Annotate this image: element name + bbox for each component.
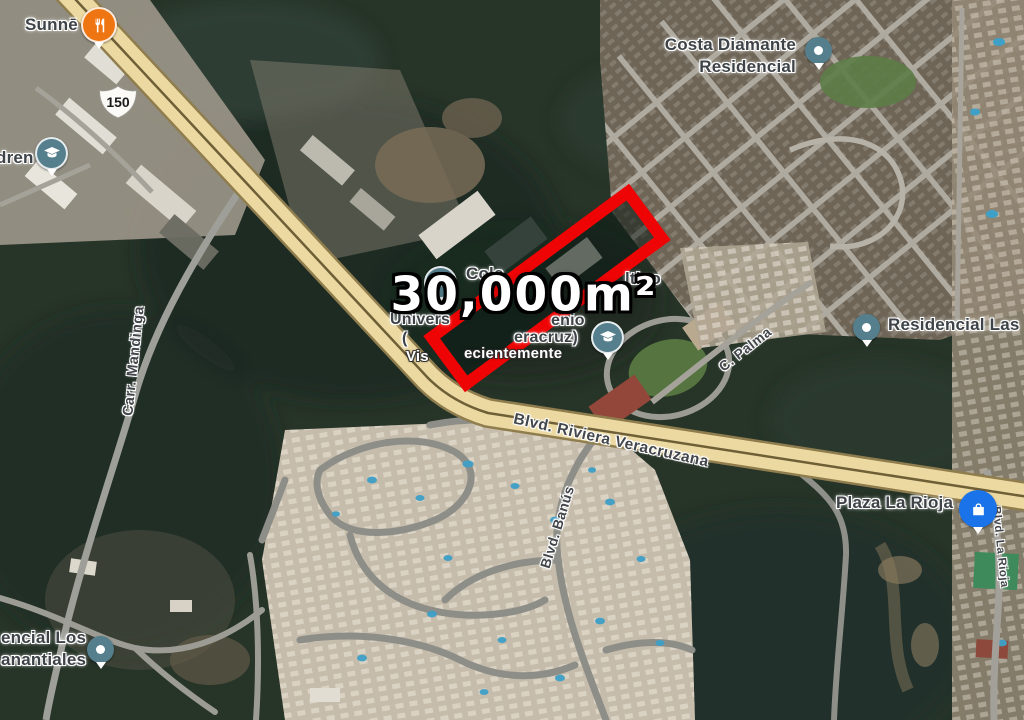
route-150-shield: 150 — [98, 85, 138, 119]
pin-tail — [94, 42, 104, 49]
restaurant-pin-sunne[interactable] — [81, 7, 117, 49]
shopping-pin-plaza[interactable] — [959, 490, 997, 534]
school-icon — [43, 147, 61, 161]
poi-label-plaza-la-rioja[interactable]: Plaza La Rioja — [836, 493, 953, 513]
poi-label-costa-diamante[interactable]: Costa Diamante Residencial — [658, 34, 796, 78]
satellite-map-view[interactable]: 150 — [0, 0, 1024, 720]
school-icon — [599, 331, 617, 345]
shopping-icon — [970, 501, 987, 518]
poi-label-universidad-paren-left[interactable]: ( — [402, 330, 408, 348]
pin-tail — [603, 353, 613, 360]
poi-label-sunne[interactable]: Sunnē — [25, 15, 78, 35]
school-pin-partial[interactable] — [35, 137, 68, 176]
place-icon — [862, 323, 871, 332]
place-icon — [96, 645, 105, 654]
poi-label-children-partial[interactable]: dren — [0, 148, 34, 168]
pin-tail — [814, 63, 824, 70]
pin-tail — [47, 169, 57, 176]
place-pin-residencial-las[interactable] — [853, 314, 880, 347]
status-visited-right: ecientemente — [464, 345, 562, 362]
pin-tail — [96, 662, 106, 669]
restaurant-icon — [91, 17, 108, 34]
poi-label-line2: Residencial — [658, 56, 796, 78]
pin-tail — [862, 340, 872, 347]
poi-label-line1: Costa Diamante — [658, 34, 796, 56]
route-number: 150 — [98, 94, 138, 110]
school-pin-universidad[interactable] — [591, 321, 624, 360]
place-pin-costa-diamante[interactable] — [805, 37, 832, 70]
status-visited-left: Vis — [406, 348, 429, 365]
poi-label-line1: encial Los — [1, 627, 86, 649]
place-icon — [814, 46, 823, 55]
place-pin-manantiales[interactable] — [87, 636, 114, 669]
pin-tail — [973, 527, 983, 534]
poi-label-residencial-las[interactable]: Residencial Las — [888, 315, 1020, 335]
parcel-area-label: 30,000m² — [391, 268, 658, 323]
poi-label-line2: anantiales — [1, 649, 86, 671]
poi-label-manantiales[interactable]: encial Los anantiales — [1, 627, 86, 671]
